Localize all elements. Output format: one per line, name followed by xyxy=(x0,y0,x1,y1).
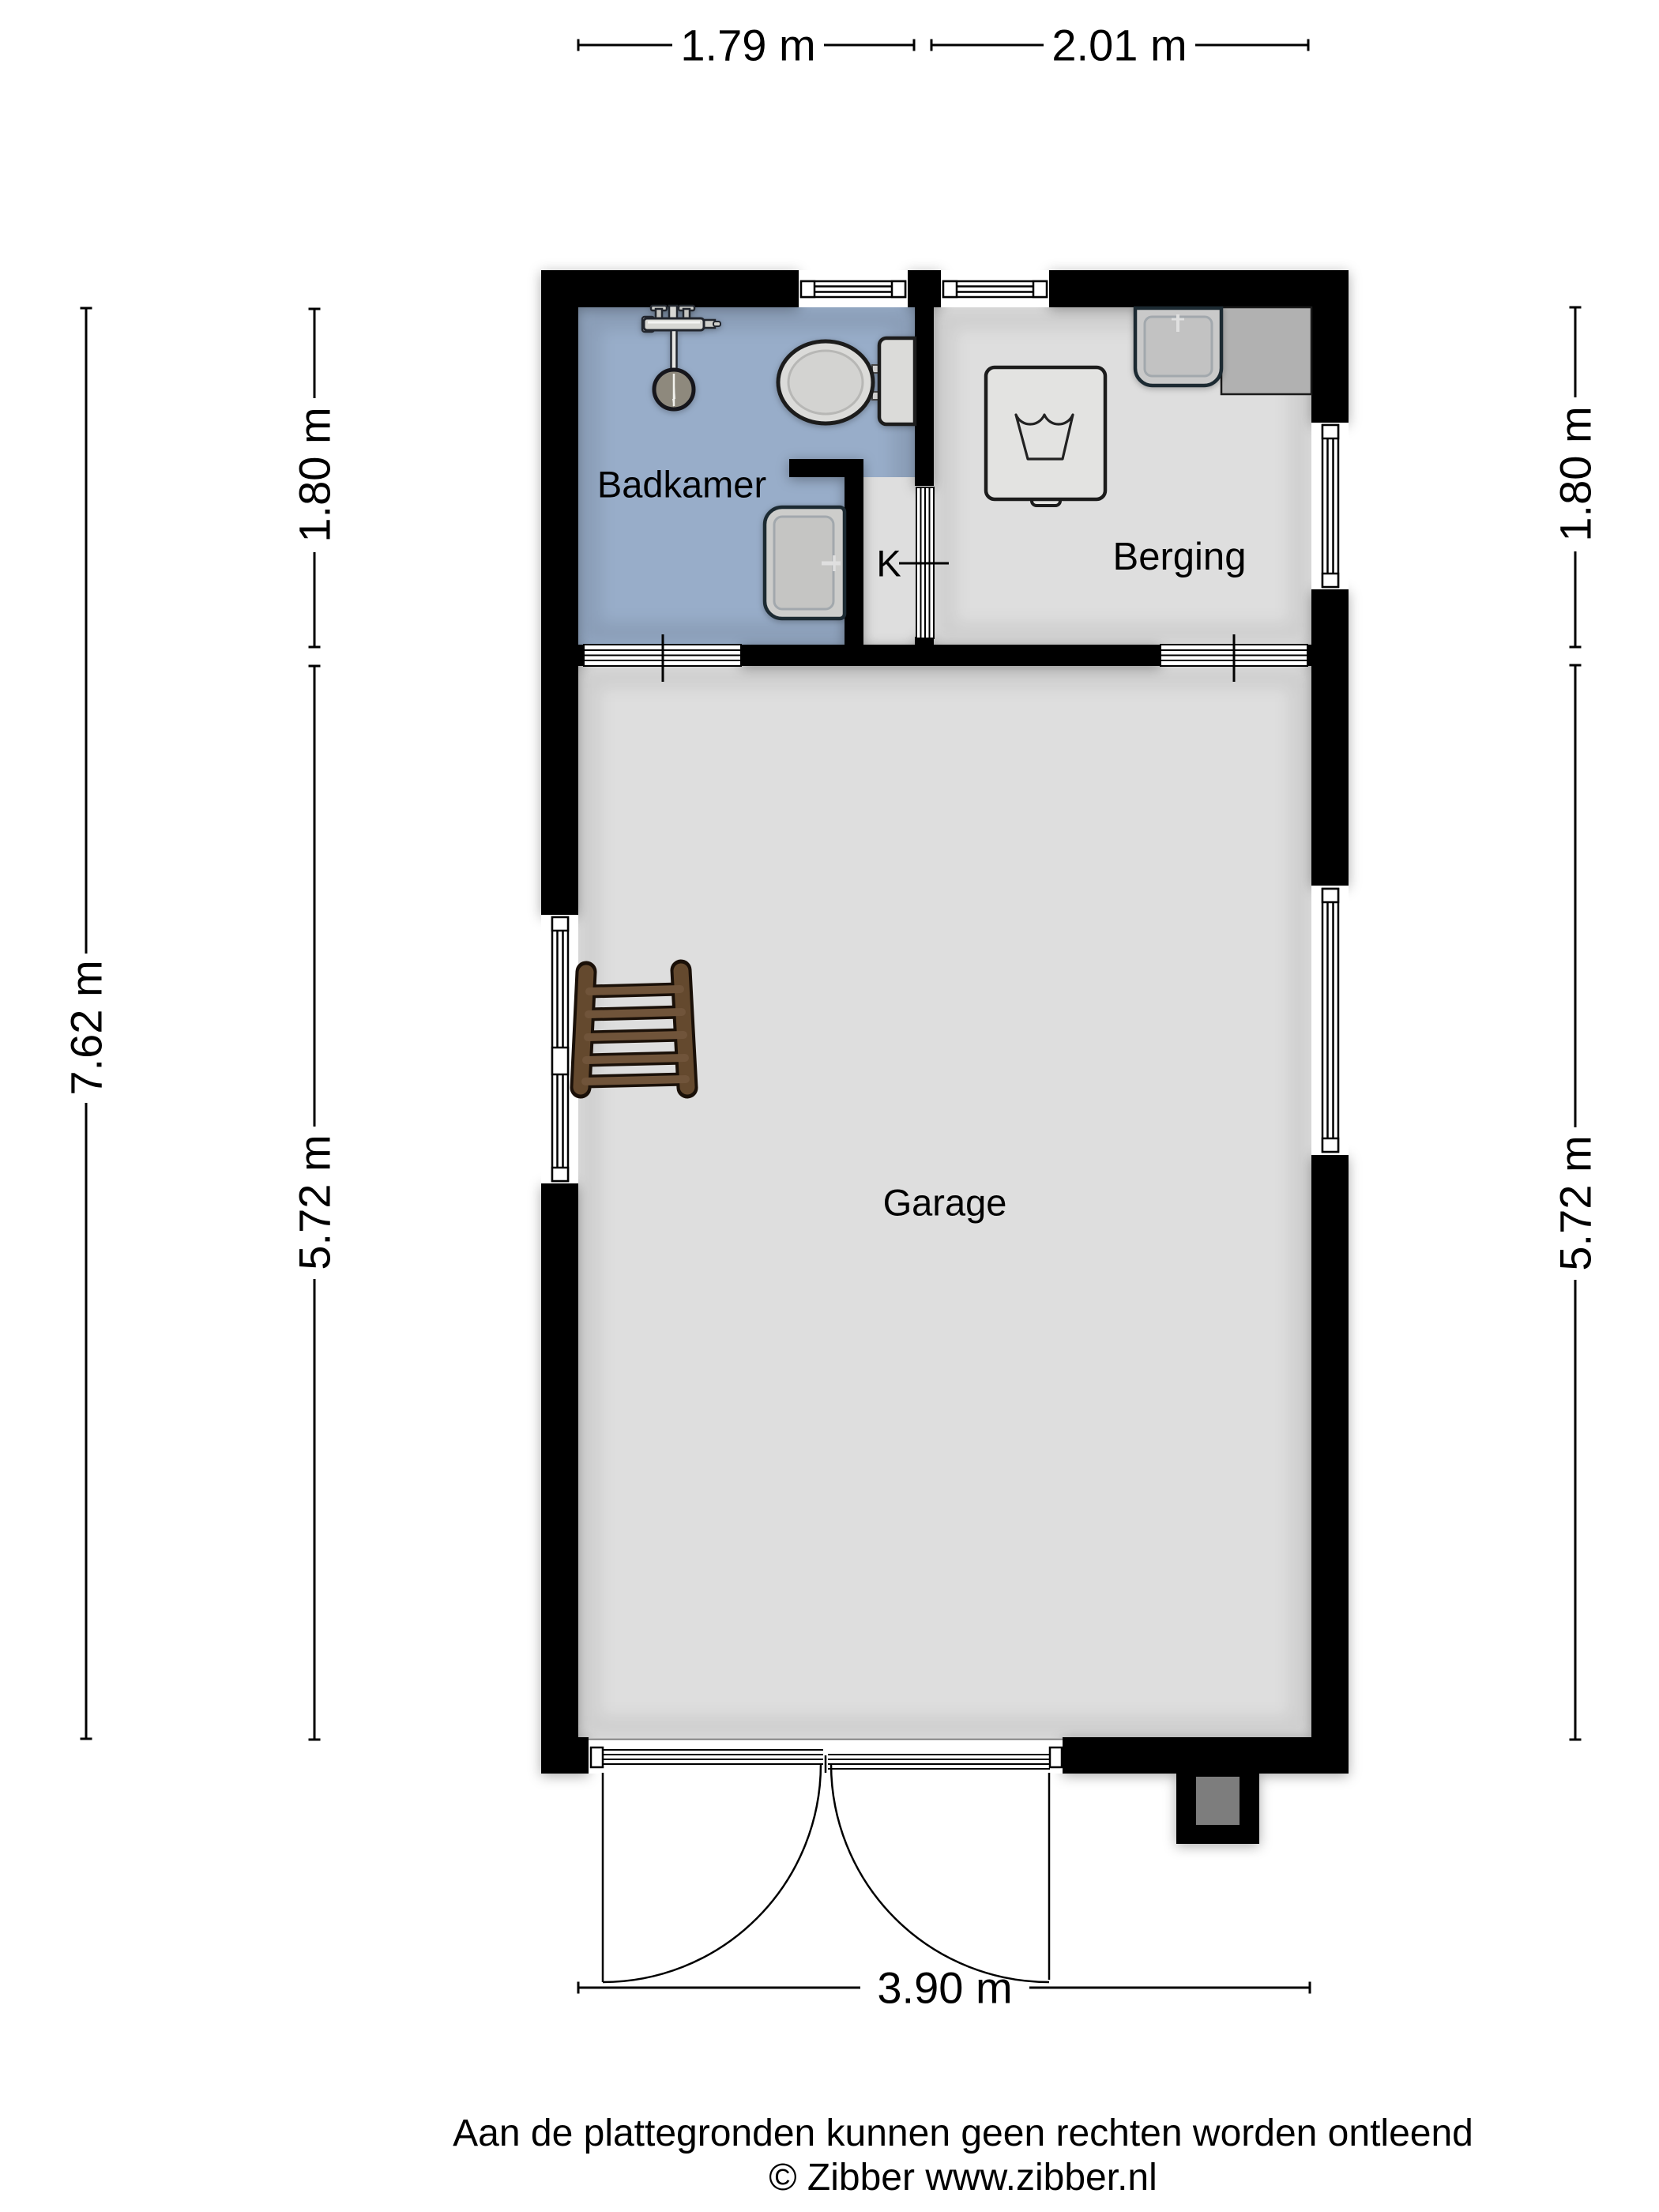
svg-text:Garage: Garage xyxy=(883,1182,1007,1224)
svg-text:© Zibber www.zibber.nl: © Zibber www.zibber.nl xyxy=(769,2157,1157,2199)
svg-text:5.72 m: 5.72 m xyxy=(290,1134,340,1270)
svg-text:3.90 m: 3.90 m xyxy=(877,1963,1012,2013)
svg-text:K: K xyxy=(876,543,901,585)
svg-text:1.80 m: 1.80 m xyxy=(1551,406,1601,541)
svg-text:1.79 m: 1.79 m xyxy=(680,21,815,70)
svg-text:1.80 m: 1.80 m xyxy=(290,407,340,542)
svg-text:Badkamer: Badkamer xyxy=(597,464,766,506)
svg-text:5.72 m: 5.72 m xyxy=(1551,1135,1601,1270)
svg-text:2.01 m: 2.01 m xyxy=(1051,21,1187,70)
svg-text:7.62 m: 7.62 m xyxy=(62,960,111,1095)
svg-text:Berging: Berging xyxy=(1113,536,1247,578)
svg-text:Aan de plattegronden kunnen ge: Aan de plattegronden kunnen geen rechten… xyxy=(453,2112,1473,2154)
